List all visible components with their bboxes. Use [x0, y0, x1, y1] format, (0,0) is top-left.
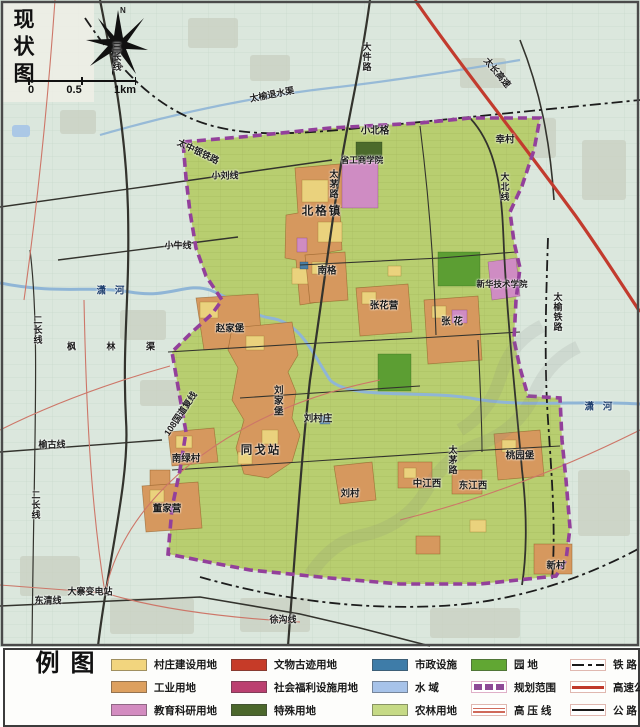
legend-label: 教育科研用地 [154, 703, 217, 718]
legend-item: 公 路 [570, 703, 640, 718]
legend-item: 市政设施 [372, 657, 457, 672]
legend-item: 文物古迹用地 [231, 657, 358, 672]
scale-bar-line [28, 80, 136, 82]
legend-swatch [372, 659, 408, 671]
scale-bar: 0 0.5 1km [28, 80, 136, 96]
legend-label: 工业用地 [154, 680, 196, 695]
map-title: 现状图 [8, 8, 38, 89]
legend-swatch [111, 681, 147, 693]
legend-swatch [231, 704, 267, 716]
legend-swatch [570, 704, 606, 716]
map-canvas: 现状图 N 0 0.5 1km 三长线大件路太长高速太榆退水渠小北格幸村太中银铁… [0, 0, 640, 647]
scale-label-0: 0 [28, 84, 34, 96]
legend-swatch [570, 681, 606, 693]
legend-item: 工业用地 [111, 680, 217, 695]
legend-item: 高速公路 [570, 680, 640, 695]
legend-label: 高 压 线 [514, 703, 551, 718]
map-drawing [0, 0, 640, 647]
legend-swatch [372, 681, 408, 693]
legend-label: 农林用地 [415, 703, 457, 718]
legend-swatch [570, 659, 606, 671]
legend-item: 水 域 [372, 680, 457, 695]
legend-label: 规划范围 [514, 680, 556, 695]
legend-label: 市政设施 [415, 657, 457, 672]
compass-north-label: N [120, 6, 126, 15]
legend-swatch [372, 704, 408, 716]
legend-item: 社会福利设施用地 [231, 680, 358, 695]
legend-item: 铁 路 [570, 657, 640, 672]
scale-label-1km: 1km [114, 84, 136, 96]
legend-item: 农林用地 [372, 703, 457, 718]
legend-label: 园 地 [514, 657, 538, 672]
legend-label: 铁 路 [613, 657, 637, 672]
legend-item: 村庄建设用地 [111, 657, 217, 672]
legend-swatch [471, 704, 507, 716]
legend-item: 教育科研用地 [111, 703, 217, 718]
legend-swatch [111, 704, 147, 716]
legend-label: 特殊用地 [274, 703, 316, 718]
legend-swatch [231, 659, 267, 671]
legend-label: 水 域 [415, 680, 439, 695]
legend-item: 特殊用地 [231, 703, 358, 718]
legend-swatch [231, 681, 267, 693]
legend-item: 园 地 [471, 657, 556, 672]
legend-item: 高 压 线 [471, 703, 556, 718]
legend-grid: 村庄建设用地工业用地教育科研用地文物古迹用地社会福利设施用地特殊用地市政设施水 … [111, 656, 640, 720]
legend-label: 社会福利设施用地 [274, 680, 358, 695]
legend-label: 公 路 [613, 703, 637, 718]
legend-title: 图例 [27, 650, 97, 725]
legend-box: 图例 村庄建设用地工业用地教育科研用地文物古迹用地社会福利设施用地特殊用地市政设… [3, 648, 640, 727]
legend-swatch [471, 659, 507, 671]
legend-item: 规划范围 [471, 680, 556, 695]
legend-label: 文物古迹用地 [274, 657, 337, 672]
legend-label: 高速公路 [613, 680, 640, 695]
status-map-page: 现状图 N 0 0.5 1km 三长线大件路太长高速太榆退水渠小北格幸村太中银铁… [0, 0, 640, 727]
scale-label-05: 0.5 [66, 84, 81, 96]
legend-label: 村庄建设用地 [154, 657, 217, 672]
legend-swatch [111, 659, 147, 671]
legend-swatch [471, 681, 507, 693]
